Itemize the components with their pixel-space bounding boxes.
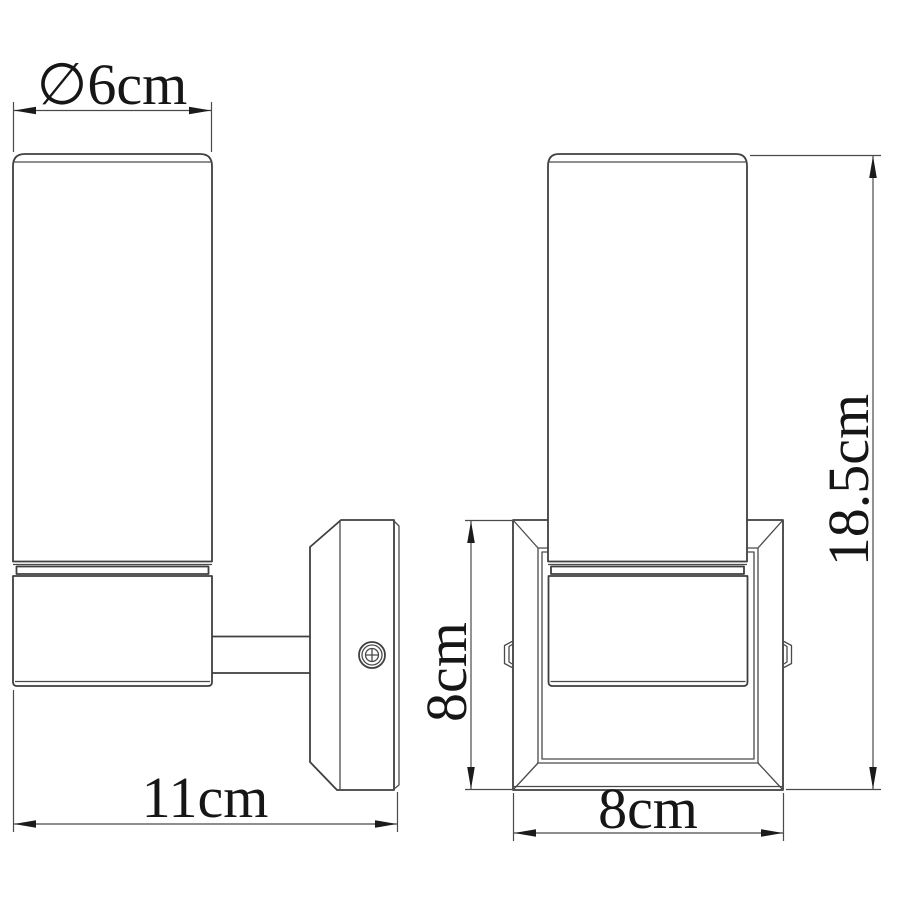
holder-outline-front: [549, 576, 748, 686]
shade-outline-side: [13, 154, 212, 562]
drawing-svg: ∅6cm 11cm 8cm 8cm 18.5cm: [0, 0, 900, 900]
holder-outline-side: [13, 576, 212, 686]
shade-outline-front: [548, 154, 747, 562]
dimension-label-plate-height: 8cm: [414, 622, 479, 722]
dimension-label-diameter: ∅6cm: [37, 52, 187, 117]
arrowhead-bottom: [869, 767, 877, 789]
dimension-label-total-height: 18.5cm: [816, 394, 881, 566]
ring-band-side: [17, 567, 209, 575]
arrowhead-left: [514, 829, 536, 837]
arrowhead-top: [467, 521, 475, 543]
dimension-plate-height: 8cm: [414, 521, 512, 790]
ring-band-front: [551, 567, 744, 575]
dimension-label-depth: 11cm: [142, 765, 269, 830]
arrowhead-left: [14, 107, 36, 115]
arrowhead-right: [189, 107, 211, 115]
dimension-shade-diameter: ∅6cm: [14, 52, 212, 152]
dimension-label-plate-width: 8cm: [598, 776, 698, 841]
lamp-shade-front: [548, 154, 747, 565]
arrowhead-bottom: [467, 767, 475, 789]
side-view: [13, 154, 399, 790]
front-view: [505, 154, 792, 790]
mounting-tab-left: [505, 641, 514, 668]
arrowhead-left: [14, 820, 36, 828]
lamp-holder-side: [13, 576, 212, 686]
technical-drawing-canvas: ∅6cm 11cm 8cm 8cm 18.5cm: [0, 0, 900, 900]
lamp-shade-side: [13, 154, 212, 565]
arrowhead-top: [869, 156, 877, 178]
lamp-holder-front: [549, 576, 748, 686]
mounting-arm-side: [212, 637, 310, 674]
wall-plate-side: [310, 520, 399, 790]
arrowhead-right: [761, 829, 783, 837]
mounting-tab-right: [783, 641, 792, 668]
arrowhead-right: [375, 820, 397, 828]
